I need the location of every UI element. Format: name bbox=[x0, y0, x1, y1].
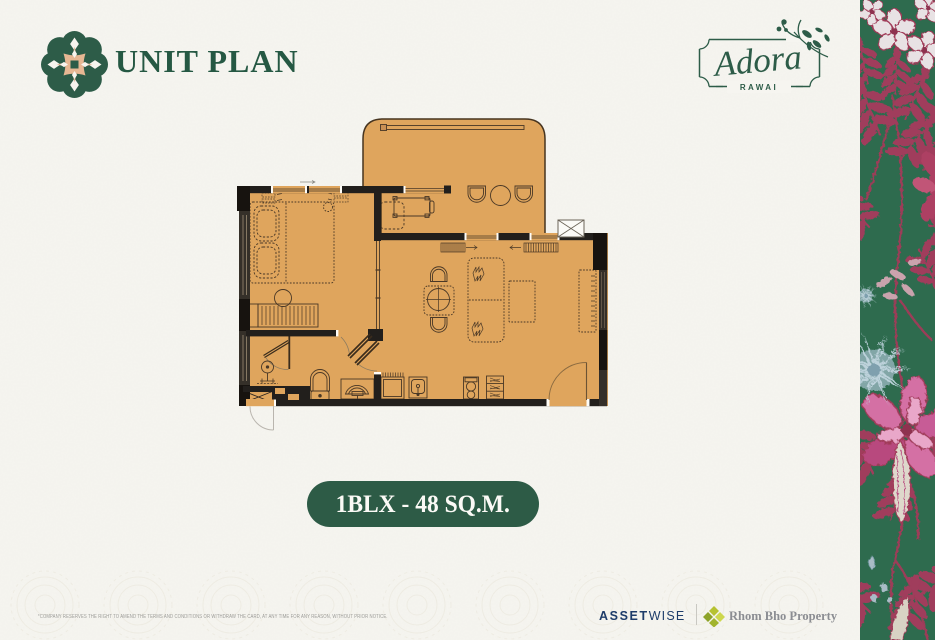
svg-text:Adora: Adora bbox=[711, 37, 804, 84]
svg-text:RAWAI: RAWAI bbox=[740, 83, 778, 92]
